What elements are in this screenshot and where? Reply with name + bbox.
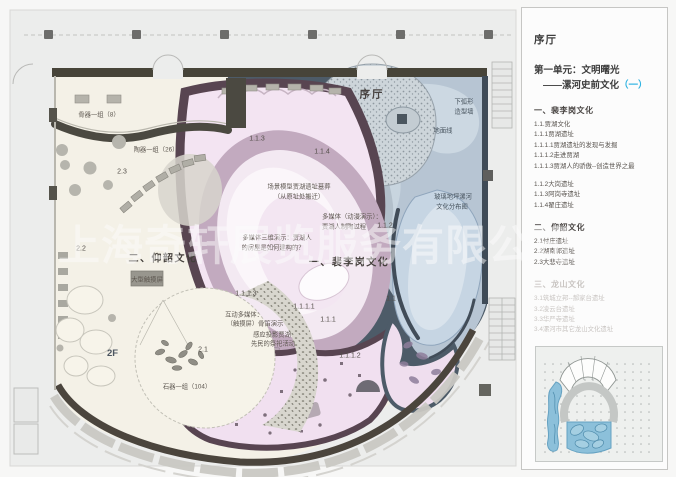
keyplan-floor-label: 2F [107, 348, 118, 359]
code-1-1: 1.1 [386, 296, 396, 303]
legend-section: 三、龙山文化3.1筑城立邦--郝家台遗址3.2凌云台遗址3.3华严寺遗址3.4漯… [534, 279, 663, 336]
legend-item: 2.2湖南郭遗址 [534, 247, 663, 257]
label-bone-group: 骨器一组（8） [78, 110, 119, 119]
legend-item: 1.1.4翟庄遗址 [534, 201, 663, 211]
label-pottery-group: 陶器一组（26） [134, 145, 179, 154]
legend-hall-title: 序厅 [534, 32, 663, 47]
label-mm-3d-2: 的房屋是如何建构的？ [242, 243, 305, 252]
legend-item: 1.1.1.2走进贾湖 [534, 151, 663, 161]
label-mm-anim-2: 贾湖人制陶过程 [322, 222, 366, 231]
code-1-1-1: 1.1.1 [320, 317, 336, 324]
code-2-2: 2.2 [76, 246, 86, 253]
code-1-1-2: 1.1.2 [377, 223, 393, 230]
label-mm-3d-1: 多媒体三维演示：贾湖人 [242, 233, 311, 242]
legend-unit-subtitle: ——漯河史前文化 [543, 80, 619, 91]
label-mm-interactive-1: 互动多媒体： [225, 310, 263, 319]
label-arc-wall-1: 下弧形 [455, 97, 474, 106]
label-scene-model-1: 场景模型贾湖遗址墓葬 [268, 182, 331, 191]
legend-panel: 序厅 第一单元：文明曙光 ——漯河史前文化（一） 一、裴李岗文化1.1.贾湖文化… [521, 7, 668, 470]
code-2-1: 2.1 [198, 347, 208, 354]
label-mm-anim-1: 多媒体（动漫演示）： [322, 212, 382, 221]
label-projection-1: 感应投影贾湖 [253, 330, 291, 339]
label-scene-model-2: （从原址处搬迁） [274, 192, 324, 201]
code-1-1-1-3: 1.1.1.3 [235, 291, 256, 298]
label-mm-interactive-2: （触摸屏）骨笛演示 [227, 319, 284, 328]
legend-unit-accent: （一） [619, 80, 648, 91]
legend-section: 一、裴李岗文化1.1.贾湖文化1.1.1贾湖遗址1.1.1.1贾湖遗址的发现与发… [534, 105, 663, 211]
section-yangshao: 二、仰韶文化 [129, 250, 198, 265]
label-ground-line: 地面线 [434, 126, 453, 135]
legend-unit-title-line2: ——漯河史前文化（一） [543, 79, 663, 92]
label-stone-group: 石器一组（104） [163, 382, 211, 391]
design-board: { "panel": { "hall_title": "序厅", "unit_t… [0, 0, 676, 477]
label-touch-screen: 大型触摸屏 [131, 275, 162, 284]
label-arc-wall-2: 造型墙 [455, 107, 474, 116]
legend-spacer [534, 172, 663, 180]
code-1-1-3: 1.1.3 [249, 136, 265, 143]
legend-item: 2.1付庄遗址 [534, 237, 663, 247]
legend-item: 1.1.2大岗遗址 [534, 180, 663, 190]
legend-item: 3.2凌云台遗址 [534, 305, 663, 315]
legend-section: 二、仰韶文化2.1付庄遗址2.2湖南郭遗址2.3大悲寺遗址 [534, 222, 663, 268]
keyplan-inset [535, 346, 663, 462]
code-1-1-1-2: 1.1.1.2 [339, 353, 360, 360]
hall-title-plan: 序厅 [360, 87, 385, 102]
legend-section-heading: 一、裴李岗文化 [534, 105, 663, 116]
legend-section-heading: 二、仰韶文化 [534, 222, 663, 233]
label-glass-floor-1: 玻璃地坪漯河 [434, 192, 472, 201]
legend-item: 2.3大悲寺遗址 [534, 258, 663, 268]
legend-unit-title-line1: 第一单元：文明曙光 [534, 64, 663, 79]
section-peiligang: 一、裴李岗文化 [309, 254, 390, 269]
legend-item: 3.3华严寺遗址 [534, 315, 663, 325]
label-glass-floor-2: 文化分布图 [436, 202, 467, 211]
legend-item: 3.4漯河市其它龙山文化遗址 [534, 325, 663, 335]
legend-item: 1.1.1.3贾湖人的骄傲--创造世界之最 [534, 162, 663, 172]
legend-item: 1.1.1.1贾湖遗址的发现与发掘 [534, 141, 663, 151]
legend-item: 1.1.3阿岗寺遗址 [534, 190, 663, 200]
code-1-1-4: 1.1.4 [314, 149, 330, 156]
legend-section-heading: 三、龙山文化 [534, 279, 663, 290]
legend-sections: 一、裴李岗文化1.1.贾湖文化1.1.1贾湖遗址1.1.1.1贾湖遗址的发现与发… [534, 105, 663, 336]
legend-item: 1.1.1贾湖遗址 [534, 130, 663, 140]
label-projection-2: 先民的祭祀活动 [251, 339, 295, 348]
code-1-1-1-1: 1.1.1.1 [293, 304, 314, 311]
legend-item: 1.1.贾湖文化 [534, 120, 663, 130]
code-2-3: 2.3 [117, 169, 127, 176]
legend-item: 3.1筑城立邦--郝家台遗址 [534, 294, 663, 304]
